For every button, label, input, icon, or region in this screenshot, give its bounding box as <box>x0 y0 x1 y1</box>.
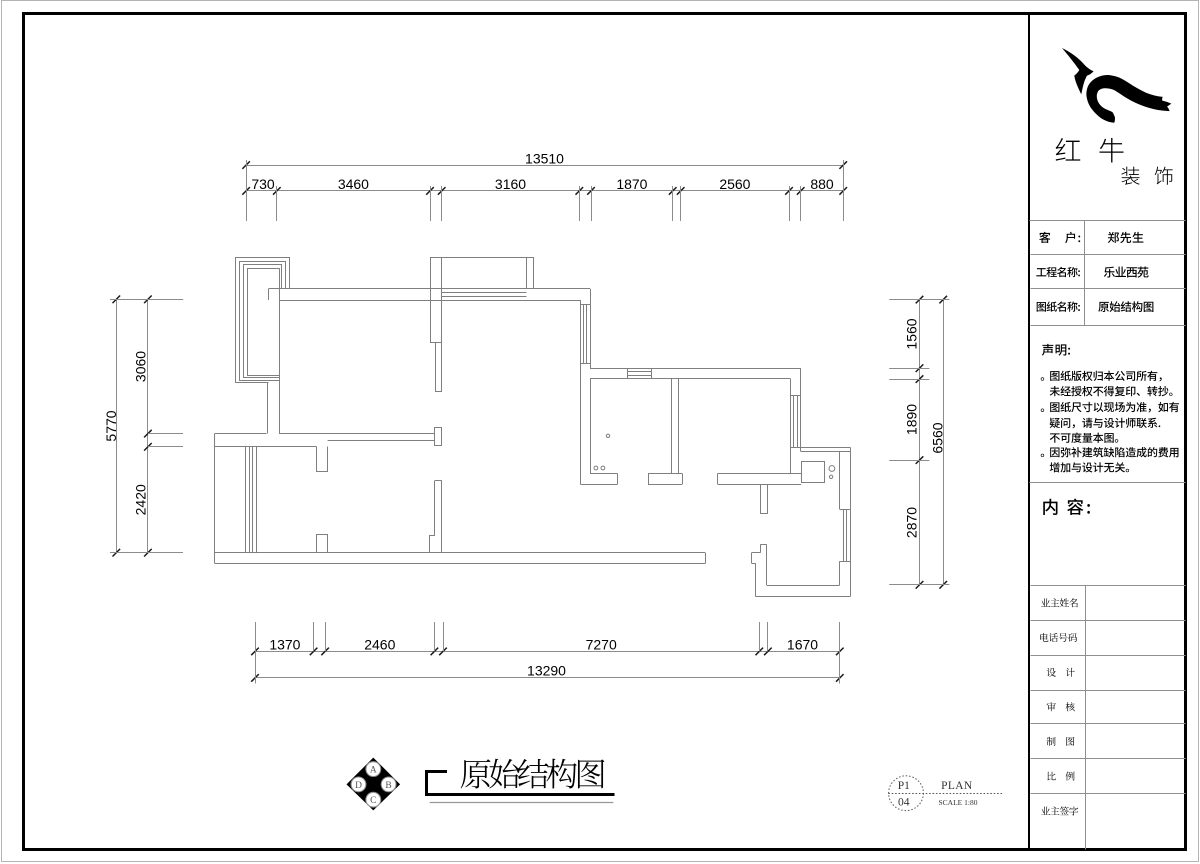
svg-text:880: 880 <box>810 176 834 192</box>
svg-text:3060: 3060 <box>133 351 149 382</box>
svg-text:13290: 13290 <box>527 662 566 678</box>
svg-text:2870: 2870 <box>903 507 919 538</box>
svg-text:2560: 2560 <box>719 176 750 192</box>
svg-text:2460: 2460 <box>364 636 395 652</box>
svg-text:730: 730 <box>251 176 275 192</box>
svg-text:A: A <box>370 766 377 776</box>
svg-text:13510: 13510 <box>525 151 564 167</box>
svg-text:1670: 1670 <box>787 636 818 652</box>
svg-text:04: 04 <box>898 797 910 809</box>
svg-text:3460: 3460 <box>338 176 369 192</box>
svg-text:1890: 1890 <box>903 404 919 435</box>
svg-text:C: C <box>370 796 376 806</box>
svg-text:7270: 7270 <box>586 636 617 652</box>
svg-text:1370: 1370 <box>269 636 300 652</box>
svg-text:P1: P1 <box>898 780 910 792</box>
svg-text:D: D <box>355 781 362 791</box>
svg-text:2420: 2420 <box>133 484 149 515</box>
svg-text:B: B <box>385 781 391 791</box>
svg-text:6560: 6560 <box>929 422 945 453</box>
svg-text:3160: 3160 <box>495 176 526 192</box>
svg-text:5770: 5770 <box>103 410 119 441</box>
svg-text:SCALE 1:80: SCALE 1:80 <box>939 798 978 807</box>
svg-text:PLAN: PLAN <box>941 780 972 792</box>
svg-text:1870: 1870 <box>616 176 647 192</box>
svg-text:1560: 1560 <box>903 318 919 349</box>
